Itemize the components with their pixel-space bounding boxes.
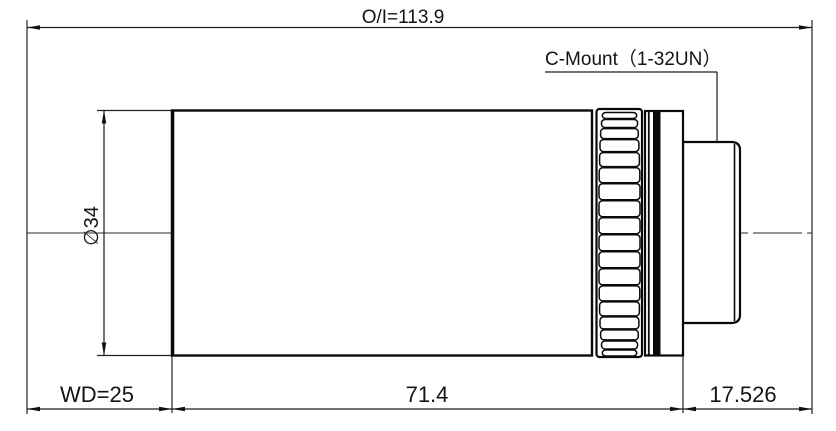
black-band bbox=[653, 111, 661, 356]
lens-technical-drawing: O/I=113.9 C-Mount（1-32UN） ∅34 WD=25 71.4… bbox=[0, 0, 836, 431]
lens-main-body bbox=[172, 111, 592, 356]
knurl-texture bbox=[599, 113, 640, 357]
rear-barrel bbox=[645, 111, 683, 356]
body-length-label: 71.4 bbox=[377, 384, 477, 406]
cmount-thread-label: C-Mount（1-32UN） bbox=[545, 50, 721, 69]
overall-dimension-label: O/I=113.9 bbox=[343, 8, 463, 27]
flange-distance-label: 17.526 bbox=[693, 384, 793, 406]
cmount-thread-cylinder bbox=[683, 142, 740, 323]
working-distance-label: WD=25 bbox=[47, 384, 147, 406]
diameter-label: ∅34 bbox=[77, 196, 107, 256]
